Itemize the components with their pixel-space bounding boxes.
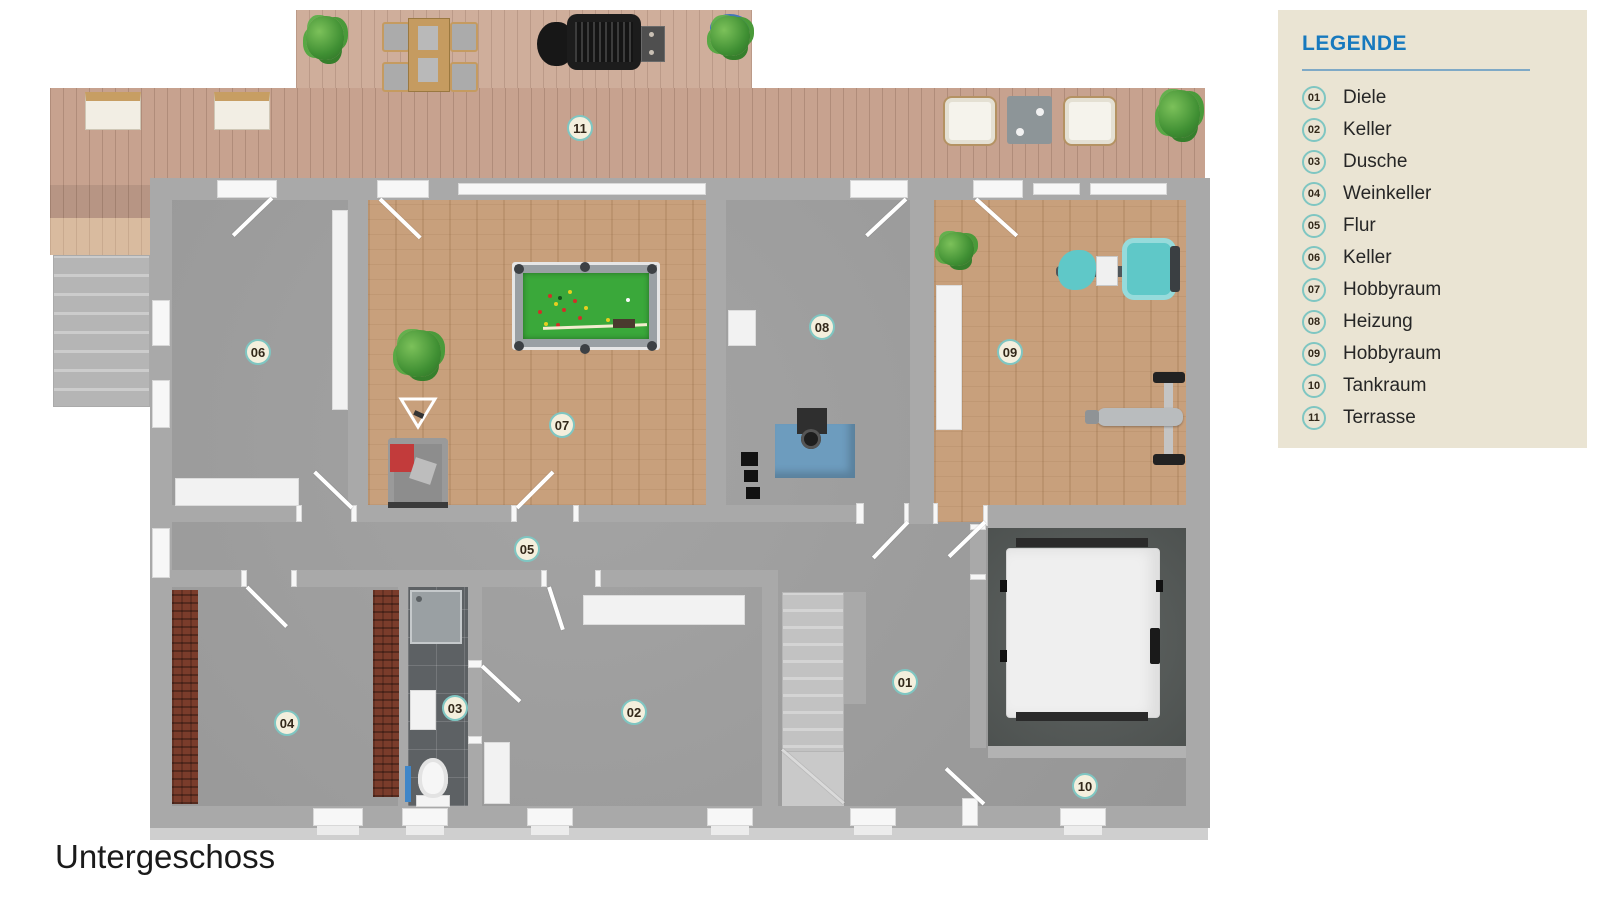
cabinet-room06 (332, 210, 348, 410)
window-left-2 (152, 380, 170, 428)
window-sill (531, 826, 569, 835)
legend-item: 06Keller (1302, 246, 1587, 270)
placemat (418, 58, 438, 82)
legend-item: 08Heizung (1302, 310, 1587, 334)
legend-item-number: 11 (1302, 406, 1326, 430)
opening-cap (595, 570, 601, 587)
machine-chair-right (1122, 238, 1176, 300)
control-box (741, 452, 758, 466)
legend-item-label: Tankraum (1343, 375, 1426, 397)
wall-stairs-right (844, 592, 866, 704)
wall-tank-platform-south (988, 746, 1186, 758)
legend-item: 07Hobbyraum (1302, 278, 1587, 302)
legend-divider (1302, 69, 1530, 71)
legend-item: 05Flur (1302, 214, 1587, 238)
window-bottom-4 (707, 808, 753, 826)
machine-pad (1096, 256, 1118, 286)
legend-item-number: 10 (1302, 374, 1326, 398)
window-room09-2 (1090, 183, 1167, 195)
opening-cap (291, 570, 297, 587)
machine-weight (1170, 246, 1180, 292)
legend-item: 04Weinkeller (1302, 182, 1587, 206)
placemat (418, 26, 438, 50)
legend-item-number: 09 (1302, 342, 1326, 366)
legend-item-label: Weinkeller (1343, 183, 1431, 205)
wall-bottom (150, 806, 1208, 828)
opening-cap (856, 503, 864, 524)
sofa-pillow (409, 457, 437, 485)
wall-03-02 (468, 587, 482, 806)
grill-grate (575, 22, 633, 62)
opening-cap (573, 505, 579, 522)
wall-left (150, 178, 172, 828)
sofa-room07 (388, 438, 448, 508)
legend-item: 11Terrasse (1302, 406, 1587, 430)
pool-rack (613, 319, 635, 328)
table-dot (1036, 108, 1044, 116)
wall-08-09 (910, 200, 934, 505)
exterior-apron (150, 828, 1208, 840)
interior-stairs (782, 592, 844, 752)
wine-rack-left (172, 590, 198, 804)
tank-top-strip (1016, 538, 1148, 547)
legend-item-label: Terrasse (1343, 407, 1416, 429)
wall-room10-top (983, 505, 1186, 528)
plant-terrace-right (1158, 90, 1200, 138)
terrace-deck-left-lower (50, 218, 150, 255)
legend-item: 01Diele (1302, 86, 1587, 110)
window-sill (1064, 826, 1102, 835)
legend-items: 01Diele02Keller03Dusche04Weinkeller05Flu… (1302, 86, 1587, 430)
bath-cabinet (410, 690, 436, 730)
window-bottom-2 (402, 808, 448, 826)
shower-drain (416, 596, 422, 602)
exercise-machine (1050, 238, 1180, 302)
wall-hall-top-3 (575, 505, 862, 522)
barbell-plate (1153, 372, 1185, 383)
opening-cap (241, 570, 247, 587)
wardrobe-room02 (484, 742, 510, 804)
pool-pockets (514, 264, 524, 274)
tank-post (1156, 580, 1163, 592)
window-bottom-5 (850, 808, 896, 826)
legend-item-number: 08 (1302, 310, 1326, 334)
bench-foot (1085, 410, 1099, 424)
terrace-armchair-1 (943, 96, 997, 146)
toilet-bowl (418, 758, 448, 798)
sofa-base (388, 502, 448, 508)
legend-item-label: Flur (1343, 215, 1376, 237)
control-box (744, 470, 758, 482)
legend-item-number: 02 (1302, 118, 1326, 142)
plant-upper-right (710, 16, 750, 56)
wall-hall-bottom-2 (295, 570, 545, 587)
legend-item-number: 07 (1302, 278, 1326, 302)
dining-chair (382, 62, 410, 92)
terrace-armchair-2 (1063, 96, 1117, 146)
opening-cap (933, 503, 938, 524)
bench-press (1085, 370, 1185, 470)
barbell-plate (1153, 454, 1185, 465)
pool-table-bed (523, 273, 649, 339)
terrace-deck-upper (296, 10, 752, 90)
bench-left-1 (85, 92, 141, 130)
window-sill (711, 826, 749, 835)
bench-pad (1097, 408, 1183, 426)
table-dot (1016, 128, 1024, 136)
door-opening-room09-top (973, 180, 1023, 198)
legend-item-label: Hobbyraum (1343, 343, 1441, 365)
sideboard-room09 (936, 285, 962, 430)
plant-room07 (396, 330, 441, 377)
sofa-cushion-red (390, 444, 414, 472)
pool-table (512, 262, 660, 350)
opening-cap (970, 574, 986, 580)
window-bottom-1 (313, 808, 363, 826)
towel-radiator (405, 766, 411, 802)
legend-item: 09Hobbyraum (1302, 342, 1587, 366)
easel-room07 (398, 396, 438, 430)
oil-tank (1006, 548, 1160, 718)
control-box (746, 487, 760, 499)
dining-chair (450, 62, 478, 92)
dining-chair (382, 22, 410, 52)
grill-knob (649, 50, 654, 55)
wall-07-08 (706, 200, 726, 505)
window-room09-1 (1033, 183, 1080, 195)
plant-room09 (938, 232, 974, 266)
window-sill (854, 826, 892, 835)
door-opening-room06-top (217, 180, 277, 198)
window-bottom-3 (527, 808, 573, 826)
window-sill (317, 826, 359, 835)
legend-item-number: 01 (1302, 86, 1326, 110)
legend-item: 10Tankraum (1302, 374, 1587, 398)
opening-cap (541, 570, 547, 587)
window-bottom-6 (1060, 808, 1106, 826)
legend-item-number: 03 (1302, 150, 1326, 174)
grill-side-shelf (641, 26, 665, 62)
tank-post (1000, 580, 1007, 592)
page-title: Untergeschoss (55, 838, 275, 876)
terrace-deck-left-upper (50, 185, 150, 218)
legend-item: 02Keller (1302, 118, 1587, 142)
bench-left-2 (214, 92, 270, 130)
wall-01-10-upper (970, 528, 986, 748)
legend-item: 03Dusche (1302, 150, 1587, 174)
exterior-stairs (53, 255, 150, 407)
opening-cap (296, 505, 302, 522)
box-room08 (728, 310, 756, 346)
plant-upper-left (306, 16, 344, 60)
legend-item-label: Heizung (1343, 311, 1413, 333)
tank-handle (1150, 628, 1160, 664)
wall-06-07 (348, 200, 368, 505)
legend-item-number: 04 (1302, 182, 1326, 206)
shelf-room02 (583, 595, 745, 625)
machine-seat-left (1058, 250, 1096, 290)
floorplan-canvas: 0102030405060708091011 LEGENDE 01Diele02… (0, 0, 1600, 900)
legend-title: LEGENDE (1302, 32, 1587, 56)
door-opening-03-02b (468, 736, 482, 744)
grill-knob (649, 32, 654, 37)
door-opening-room07-top (377, 180, 429, 198)
window-left-hall (152, 528, 170, 578)
terrace-side-table (1007, 96, 1052, 144)
tank-post (1000, 650, 1007, 662)
legend-item-label: Hobbyraum (1343, 279, 1441, 301)
legend-item-label: Dusche (1343, 151, 1407, 173)
dining-chair (450, 22, 478, 52)
door-opening-room08-top (850, 180, 908, 198)
sideboard-room06 (175, 478, 299, 506)
legend-panel: LEGENDE 01Diele02Keller03Dusche04Weinkel… (1278, 10, 1587, 448)
wall-02-01 (762, 587, 778, 806)
furnace-burner (801, 429, 821, 449)
legend-item-number: 06 (1302, 246, 1326, 270)
window-left-1 (152, 300, 170, 346)
tank-bottom-strip (1016, 712, 1148, 721)
wall-hall-bottom-1 (172, 570, 245, 587)
legend-item-label: Keller (1343, 247, 1392, 269)
window-sill (406, 826, 444, 835)
pool-balls (525, 275, 531, 281)
legend-item-label: Diele (1343, 87, 1386, 109)
wall-hall-top-1 (172, 505, 300, 522)
window-band-room07 (458, 183, 706, 195)
legend-item-label: Keller (1343, 119, 1392, 141)
door-pillar-10 (962, 798, 978, 826)
wine-rack-right (373, 590, 399, 797)
wall-hall-bottom-3 (597, 570, 778, 587)
legend-item-number: 05 (1302, 214, 1326, 238)
dining-set (382, 16, 474, 94)
bbq-grill (537, 12, 673, 72)
wall-right (1186, 178, 1210, 828)
